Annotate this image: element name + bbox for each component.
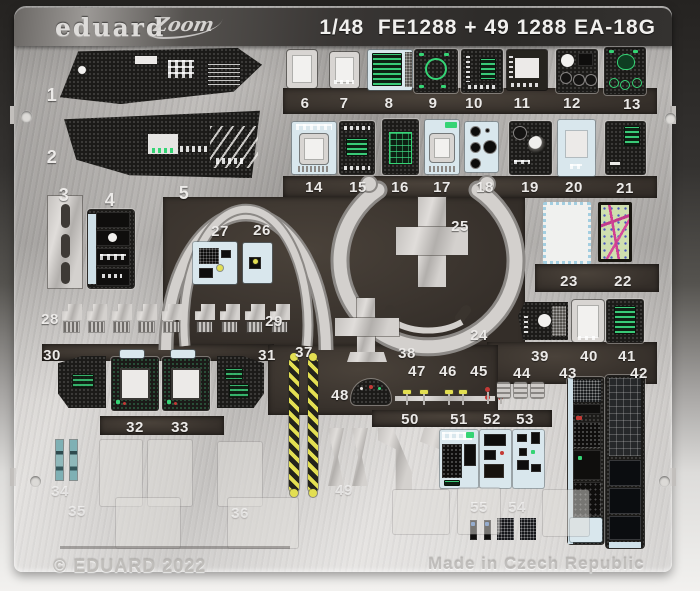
panel-detail [609,516,641,540]
etched-parts: 1234567891011121314151617181920212223242… [28,8,672,570]
panel-detail [464,444,476,466]
part-35-relief [100,440,142,506]
panel-detail [466,56,470,82]
panel-detail [514,160,530,164]
rail-end [290,489,298,497]
part-number-41: 41 [618,349,636,364]
part-22-moving-map-display [598,202,632,262]
part-29-clip [245,304,265,320]
panel-detail [378,387,381,390]
part-number-33: 33 [171,420,189,435]
cutout-detail [61,234,70,258]
panel-detail [576,416,582,420]
part-28-clip [87,304,107,320]
mini-gauge [609,78,619,88]
panel-detail [208,64,240,86]
display-table [389,132,412,164]
panel-detail [609,460,641,486]
panel-detail [171,350,195,358]
panel-detail [334,80,354,84]
dial [485,128,490,133]
panel-detail [531,432,540,444]
part-number-51: 51 [450,412,468,427]
part-number-32: 32 [126,420,144,435]
relief-part [116,498,180,548]
part-number-27: 27 [211,224,229,239]
part-number-5: 5 [179,184,190,202]
fret-shadow-line [60,546,290,549]
part-number-40: 40 [580,349,598,364]
gauge [560,72,572,84]
panel-window [565,130,588,158]
dial [513,126,527,140]
panel-detail [444,480,460,486]
panel-detail [609,378,641,456]
part-49-bowtie [352,428,368,486]
panel-detail [168,60,194,78]
panel-window [515,58,539,78]
part-number-18: 18 [476,180,494,195]
gauge [585,74,597,86]
panel-detail [360,387,363,390]
panel-detail [344,126,370,130]
panel-detail [221,250,231,258]
part-34-strip [56,440,63,480]
display-text [444,53,449,56]
part-28-clip [64,322,79,332]
part-number-4: 4 [105,191,116,209]
part-36-relief [218,442,262,506]
part-29-clip [197,322,212,332]
panel-detail [102,274,122,278]
made-in-etching: Made in Czech Republic [428,554,645,574]
part-number-29: 29 [265,314,283,329]
panel-detail [88,214,96,284]
part-number-54: 54 [508,500,526,515]
panel-detail [442,444,462,478]
panel-detail [511,83,541,87]
fret-hole [30,476,41,487]
panel-detail [609,542,641,548]
handle-stem [423,394,425,405]
panel-detail [199,268,213,278]
part-number-11: 11 [514,96,531,111]
bezel-cutout [173,370,199,398]
attitude-ball [528,136,546,154]
panel-detail [578,456,582,460]
panel-detail [429,166,455,172]
part-number-14: 14 [305,180,323,195]
panel-detail [466,432,474,438]
panel-detail [610,162,620,165]
part-number-42: 42 [630,366,648,381]
part-44-clip [497,382,510,398]
panel-detail [517,434,527,442]
part-34-strip [70,440,77,480]
part-number-10: 10 [465,96,483,111]
panel-detail [517,460,529,470]
mini-gauge [632,78,642,88]
gauge [561,54,574,67]
part-number-44: 44 [513,366,531,381]
panel-detail [167,400,171,404]
display-text [609,50,614,53]
part-48-compass-half [352,380,390,404]
part-number-9: 9 [429,96,438,111]
bezel-cutout [430,134,454,162]
product-photo: 1234567891011121314151617181920212223242… [0,0,700,591]
photo-etch-fret: 1234567891011121314151617181920212223242… [14,6,672,572]
part-number-36: 36 [231,506,249,521]
part-28-clip [164,322,179,332]
panel-detail [578,336,598,340]
panel-detail [123,402,126,405]
relief-part [393,490,449,534]
part-28-clip [137,304,157,320]
part-number-55: 55 [470,500,488,515]
part-number-45: 45 [470,364,488,379]
panel-detail [531,464,541,472]
part-number-43: 43 [559,366,577,381]
fret-interior: 1234567891011121314151617181920212223242… [28,8,672,570]
panel-detail [519,448,527,456]
display-text [419,53,424,56]
panel-detail [524,316,528,334]
panel-detail [573,450,601,480]
eduard-logo: eduard [55,13,165,42]
part-number-8: 8 [385,96,394,111]
handle-stem [448,394,450,405]
part-29-clip [220,304,240,320]
part-29-clip [222,322,237,332]
part-number-26: 26 [253,223,271,238]
part-number-46: 46 [439,364,457,379]
part-number-37: 37 [295,345,313,360]
panel-detail [500,451,504,455]
part-31-corner-panel [217,356,264,408]
panel-detail [484,434,506,446]
part-number-2: 2 [47,148,58,166]
display-screen [480,58,496,80]
panel-detail [174,402,177,405]
panel-detail [531,450,535,454]
bezel-cutout [122,370,148,398]
part-number-7: 7 [340,96,349,111]
panel-detail [100,254,126,260]
part-28-clip [162,304,182,320]
part-29-clip [247,322,262,332]
panel-detail [152,148,174,153]
growler-icon [617,54,635,70]
mini-gauge [620,80,630,90]
part-number-50: 50 [401,412,419,427]
panel-detail [484,464,504,478]
part-50-bracket [378,428,412,490]
part-37-striped-rail [308,358,318,492]
panel-detail [78,66,86,74]
panel-detail [609,488,641,514]
dial [470,142,481,153]
panel-detail [573,380,601,402]
fret-title-band: eduard Zoom 1/48 FE1288 + 49 1288 EA-18G [14,8,672,46]
display-text [441,85,446,88]
relief-part [543,490,589,536]
part-number-47: 47 [408,364,426,379]
handle-sprue-bar [395,396,495,401]
panel-detail [573,404,601,414]
part-number-6: 6 [301,96,310,111]
panel-detail [445,122,457,128]
part-number-23: 23 [560,274,578,289]
handle-stem [462,394,464,405]
part-35-relief [148,440,192,506]
part-number-31: 31 [258,348,276,363]
panel-detail [570,164,582,169]
panel-detail [484,450,496,460]
panel-detail [552,306,566,336]
part-number-53: 53 [516,412,534,427]
part-54-panel [520,518,536,540]
part-number-17: 17 [433,180,451,195]
display-screen [72,374,94,388]
panel-detail [298,166,330,172]
part-37-striped-rail [289,358,299,492]
part-number-34: 34 [51,484,69,499]
part-23-placard [543,202,591,264]
display-screen [346,138,368,156]
zoom-series-logo: Zoom [149,14,224,39]
panel-detail [120,350,144,358]
gauge [538,314,551,327]
part-number-19: 19 [521,180,539,195]
part-29-clip [195,304,215,320]
part-49-bowtie [328,428,344,486]
part-28-clip [112,304,132,320]
panel-detail [96,212,130,228]
mfd-screen [372,53,402,86]
part-number-24: 24 [470,328,488,343]
rail-end [309,489,317,497]
display-text [419,85,424,88]
panel-detail [369,385,373,389]
part-number-30: 30 [43,348,61,363]
part-28-clip [139,322,154,332]
panel-detail [216,158,246,164]
part-number-35: 35 [68,504,86,519]
part-number-49: 49 [335,483,353,498]
part-number-39: 39 [531,349,549,364]
fret-hole [665,113,676,124]
cutout-detail [61,204,70,228]
cutout-detail [61,262,70,284]
panel-detail [108,233,117,242]
part-number-22: 22 [614,274,632,289]
part-number-16: 16 [391,180,409,195]
display-screen [229,384,249,398]
panel-detail [573,422,601,448]
part-44-clip [531,382,544,398]
fret-edge-tab [10,106,16,124]
dial [470,126,481,137]
display-screen [624,126,640,146]
panel-detail [405,52,412,87]
panel-detail [116,400,120,404]
part-number-3: 3 [59,186,70,204]
panel-detail [468,85,496,89]
part-28-clip [114,322,129,332]
part-number-12: 12 [563,96,581,111]
part-number-52: 52 [483,412,501,427]
handle-stem [406,394,408,405]
part-number-20: 20 [565,180,583,195]
part-number-13: 13 [623,97,641,112]
part-28-clip [89,322,104,332]
panel-detail [509,56,513,78]
panel-detail [578,53,593,66]
bezel-cutout [300,134,328,164]
fret-edge-tab [10,468,16,486]
part-38-cross-bracket [335,318,399,336]
part-6-display-bezel [287,50,317,88]
part-number-21: 21 [616,181,634,196]
panel-detail [180,146,210,152]
part-38-cross-bracket [347,352,387,362]
hsi-ring [425,58,447,80]
panel-detail [135,56,157,64]
panel-detail [217,265,223,271]
display-screen [225,368,243,380]
fret-hole [21,111,32,122]
display-text [633,50,638,53]
part-number-1: 1 [47,86,58,104]
sheet-title: 1/48 FE1288 + 49 1288 EA-18G [319,16,656,40]
part-28-clip [62,304,82,320]
copyright-etching: © EDUARD 2022 [53,556,206,577]
dial [483,140,497,154]
panel-detail [344,166,370,170]
part-number-28: 28 [41,312,59,327]
panel-detail [296,124,332,130]
part-44-clip [514,382,527,398]
dial [470,158,481,169]
part-number-25: 25 [451,219,469,234]
part-number-48: 48 [331,388,349,403]
part-number-15: 15 [349,180,367,195]
panel-detail [199,248,219,264]
display-screen [614,306,636,334]
fret-hole [659,476,670,487]
part-number-38: 38 [398,346,416,361]
gauge [573,74,585,86]
panel-detail [253,259,258,264]
handle-stem [487,392,489,404]
